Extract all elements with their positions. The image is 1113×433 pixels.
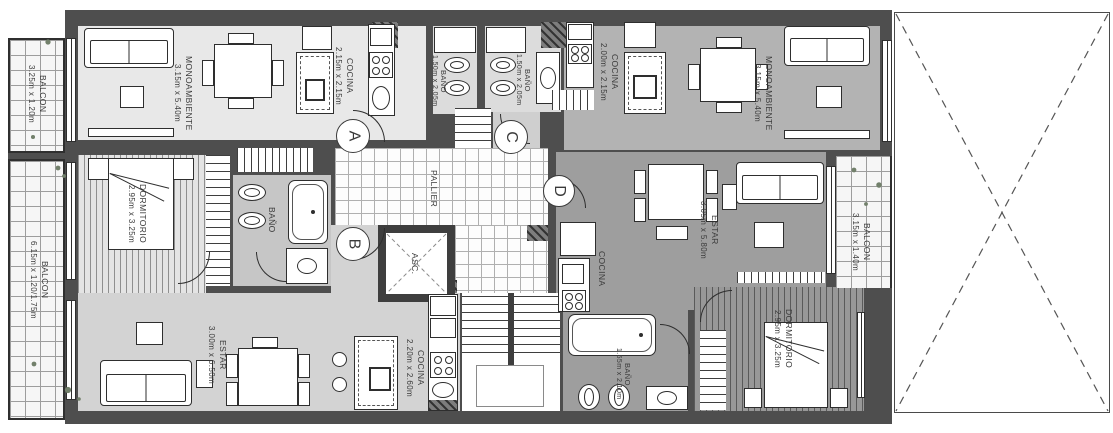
shelf	[784, 130, 870, 139]
chair	[634, 198, 646, 222]
kitchen-cabinet	[302, 26, 332, 50]
nightstand	[172, 158, 194, 180]
stove-icon	[568, 44, 592, 64]
unit-letter-a: A	[344, 131, 362, 142]
bidet-icon	[490, 80, 516, 96]
chair	[202, 60, 214, 86]
wardrobe-d	[700, 330, 726, 410]
stair-rail	[508, 293, 514, 365]
label-bano-a: BAÑO 1.50m x 2.05m	[430, 50, 448, 112]
label-dormitorio-b: DORMITORIO 2.95m x 3.25m	[126, 170, 148, 258]
plant-icon	[48, 160, 80, 192]
dining-table	[648, 164, 704, 220]
vanity	[286, 248, 328, 284]
kitchen-island	[296, 52, 334, 114]
stove-icon	[562, 290, 586, 312]
elevator-shaft: ASC.	[378, 225, 455, 302]
label-balcon-sw: BALCON 6.15m x 1.20/1.75m	[28, 228, 50, 332]
sink-icon	[372, 86, 390, 110]
wardrobe-b	[206, 155, 230, 286]
unit-letter-d: D	[550, 185, 568, 197]
chair	[228, 98, 254, 109]
counter-cabinet	[370, 28, 392, 46]
stool	[332, 377, 347, 392]
fridge	[560, 222, 596, 256]
chair	[706, 170, 718, 194]
sink-icon	[540, 67, 556, 89]
sofa	[736, 162, 824, 204]
dining-table	[700, 48, 756, 102]
counter-cabinet	[568, 24, 592, 40]
stove-icon	[369, 52, 393, 78]
sofa	[784, 26, 870, 66]
coffee-table	[754, 222, 784, 248]
counter-shelf	[552, 90, 594, 110]
island-sink	[369, 367, 391, 391]
plant-icon	[26, 20, 70, 64]
label-bano-c: BAÑO 1.50m x 2.05m	[514, 48, 532, 112]
unit-letter-c: C	[502, 131, 520, 143]
pallier-corridor	[335, 148, 548, 225]
label-cocina-d: COCINA	[596, 244, 607, 294]
window-mono-c	[882, 40, 892, 142]
label-monoambiente-a: MONOAMBIENTE 3.15m x 5.40m	[172, 45, 194, 141]
lot-cross-lines	[895, 13, 1109, 412]
chair	[634, 170, 646, 194]
island-sink	[305, 79, 325, 101]
stairwell	[462, 293, 560, 411]
unit-door-d: D	[543, 175, 575, 207]
bathtub	[288, 180, 328, 244]
window-dorm-d	[857, 312, 865, 398]
chair	[298, 354, 310, 378]
fridge	[624, 22, 656, 48]
sink-icon	[657, 391, 677, 405]
label-bano-d: BAÑO 1.55m x 2.10m	[614, 346, 632, 402]
unit-door-b: B	[336, 227, 370, 261]
shelf	[88, 128, 174, 137]
dining-table	[238, 348, 298, 406]
label-pallier: PALLIER	[428, 160, 439, 218]
nightstand	[744, 388, 762, 408]
counter-cabinet	[430, 318, 456, 338]
label-monoambiente-c: MONOAMBIENTE 3.15m x 5.40m	[752, 45, 774, 141]
side-table	[120, 86, 144, 108]
closet-strip-b	[237, 148, 313, 172]
vanity	[646, 386, 688, 410]
bidet-icon	[238, 212, 266, 229]
unit-door-c: C	[494, 120, 528, 154]
plant-icon	[850, 188, 882, 220]
chair	[716, 102, 742, 113]
unit-door-a: A	[336, 119, 370, 153]
sofa	[84, 28, 174, 68]
floor-plan: BALCON 3.25m x 1.20m BALCON 6.15m x 1.20…	[0, 0, 1113, 433]
side-table	[816, 86, 842, 108]
counter-end	[429, 400, 457, 410]
vacant-lot	[894, 12, 1110, 413]
toilet-icon	[238, 184, 266, 201]
plant-icon	[64, 384, 94, 414]
air-shaft-c	[541, 22, 567, 48]
unit-letter-b: B	[344, 239, 362, 250]
island-sink	[633, 75, 657, 99]
chair	[228, 33, 254, 44]
kitchen-island	[354, 336, 398, 410]
side-table	[722, 184, 737, 210]
nightstand	[88, 158, 110, 180]
label-estar-d: ESTAR 3.05m x 5.80m	[698, 192, 720, 268]
label-elevator: ASC.	[409, 239, 420, 289]
label-dormitorio-d: DORMITORIO 2.95m x 3.25m	[772, 298, 794, 380]
chair	[298, 382, 310, 406]
label-cocina-c: COCINA 2.00m x 2.15m	[598, 36, 620, 108]
sofa	[100, 360, 192, 406]
bathtub	[568, 314, 656, 356]
chair	[252, 337, 278, 348]
bench	[656, 226, 688, 240]
side-table	[136, 322, 163, 345]
label-cocina-b: COCINA 2.20m x 2.60m	[404, 328, 426, 408]
sink-icon	[562, 264, 584, 284]
label-cocina-a: COCINA 2.15m x 2.15m	[333, 40, 355, 112]
label-estar-b: ESTAR 3.00m x 6.50m	[206, 315, 228, 395]
stove-icon	[430, 352, 456, 378]
toilet-icon	[490, 57, 516, 73]
label-bano-b: BAÑO	[266, 198, 277, 242]
chair	[688, 64, 700, 90]
chair	[716, 37, 742, 48]
dining-table	[214, 44, 272, 98]
sink-icon	[432, 382, 454, 398]
nightstand	[830, 388, 848, 408]
stool	[332, 352, 347, 367]
toilet-icon	[578, 384, 600, 410]
shelf	[737, 272, 825, 283]
sink-icon	[297, 258, 317, 274]
kitchen-island	[624, 52, 666, 114]
counter-cabinet	[430, 296, 456, 316]
stair-landing	[476, 365, 544, 407]
chair	[272, 60, 284, 86]
air-shaft-pallier	[527, 225, 548, 241]
